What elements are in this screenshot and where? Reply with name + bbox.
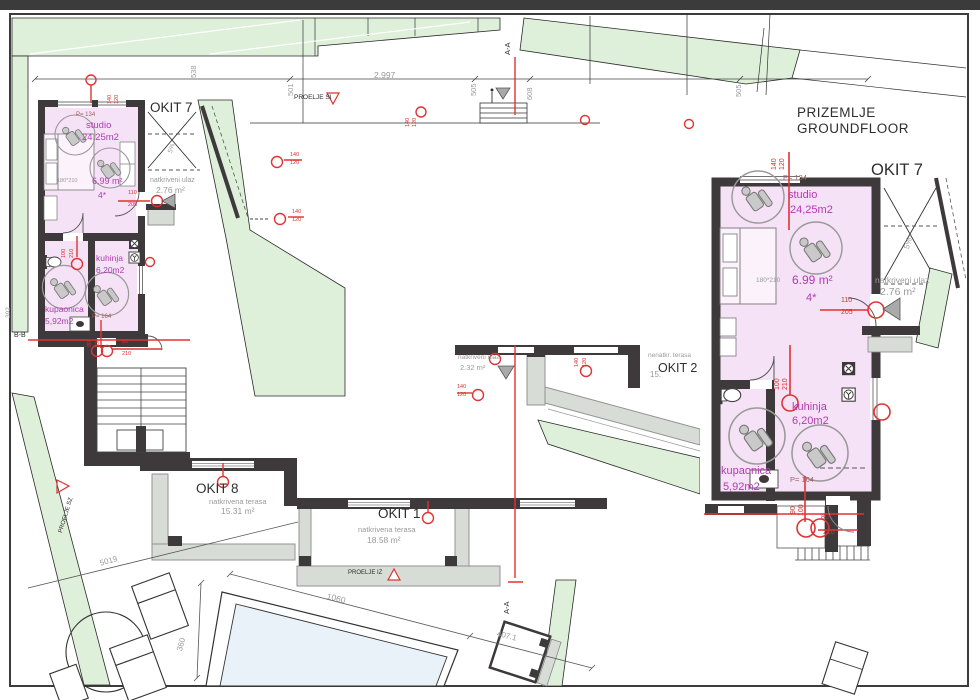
overlay-kupaonica: kupaonica	[721, 466, 771, 477]
overlay-ulaz-label: natkriveni ulaz	[875, 276, 929, 285]
stove-icon	[842, 362, 855, 375]
overlay-kupaonica-area: 5,92m2	[723, 482, 760, 493]
overlay-drawing	[700, 140, 966, 568]
boiler-icon	[842, 388, 855, 401]
overlay-mark-140: 140	[771, 158, 778, 170]
overlay-okit7-label: OKIT 7	[871, 162, 923, 179]
detail-overlay-groundfloor-unit: OKIT 7 P= 134 studio 24,25m2 180*210 6.9…	[700, 140, 966, 568]
overlay-mark-120: 120	[779, 158, 786, 170]
overlay-kuhinja-area: 6,20m2	[792, 416, 829, 427]
overlay-mark-205: 205	[841, 309, 853, 316]
overlay-studio-area: 24,25m2	[790, 205, 833, 216]
pool	[206, 592, 458, 686]
overlay-ulaz-area: 2.76 m²	[880, 287, 916, 298]
overlay-studio-width: 6.99 m²	[792, 274, 833, 286]
overlay-door-triangle	[883, 298, 900, 320]
overlay-mark-210: 210	[782, 378, 789, 390]
overlay-bed-size: 180*210	[756, 278, 780, 285]
stove-icon	[129, 238, 140, 249]
overlay-p164: P= 164	[790, 476, 814, 484]
overlay-mark-90: 90	[790, 506, 797, 514]
floorplan-page: OKIT 7 natkriveni ulaz 2.76 m² studio 24…	[0, 0, 980, 700]
boiler-icon	[129, 252, 140, 263]
overlay-mark-110: 110	[841, 297, 852, 304]
staircase	[97, 368, 186, 452]
overlay-studio-unit	[716, 171, 882, 505]
shed-structures	[490, 622, 868, 694]
overlay-mark-80: 80	[821, 514, 829, 521]
overlay-p134: P= 134	[783, 174, 807, 182]
overlay-entrance-slab	[862, 326, 920, 352]
overlay-entrance-ramp	[884, 178, 966, 288]
overlay-mark-100: 100	[774, 378, 781, 390]
slab-corner-blocks	[146, 204, 545, 566]
studio-unit-main	[41, 99, 146, 335]
overlay-studio-label: studio	[788, 190, 817, 201]
overlay-stars: 4*	[806, 293, 816, 304]
overlay-mark-100: 100	[798, 504, 805, 516]
overlay-mark-210: 210	[823, 529, 835, 536]
overlay-kuhinja: kuhinja	[792, 402, 827, 413]
